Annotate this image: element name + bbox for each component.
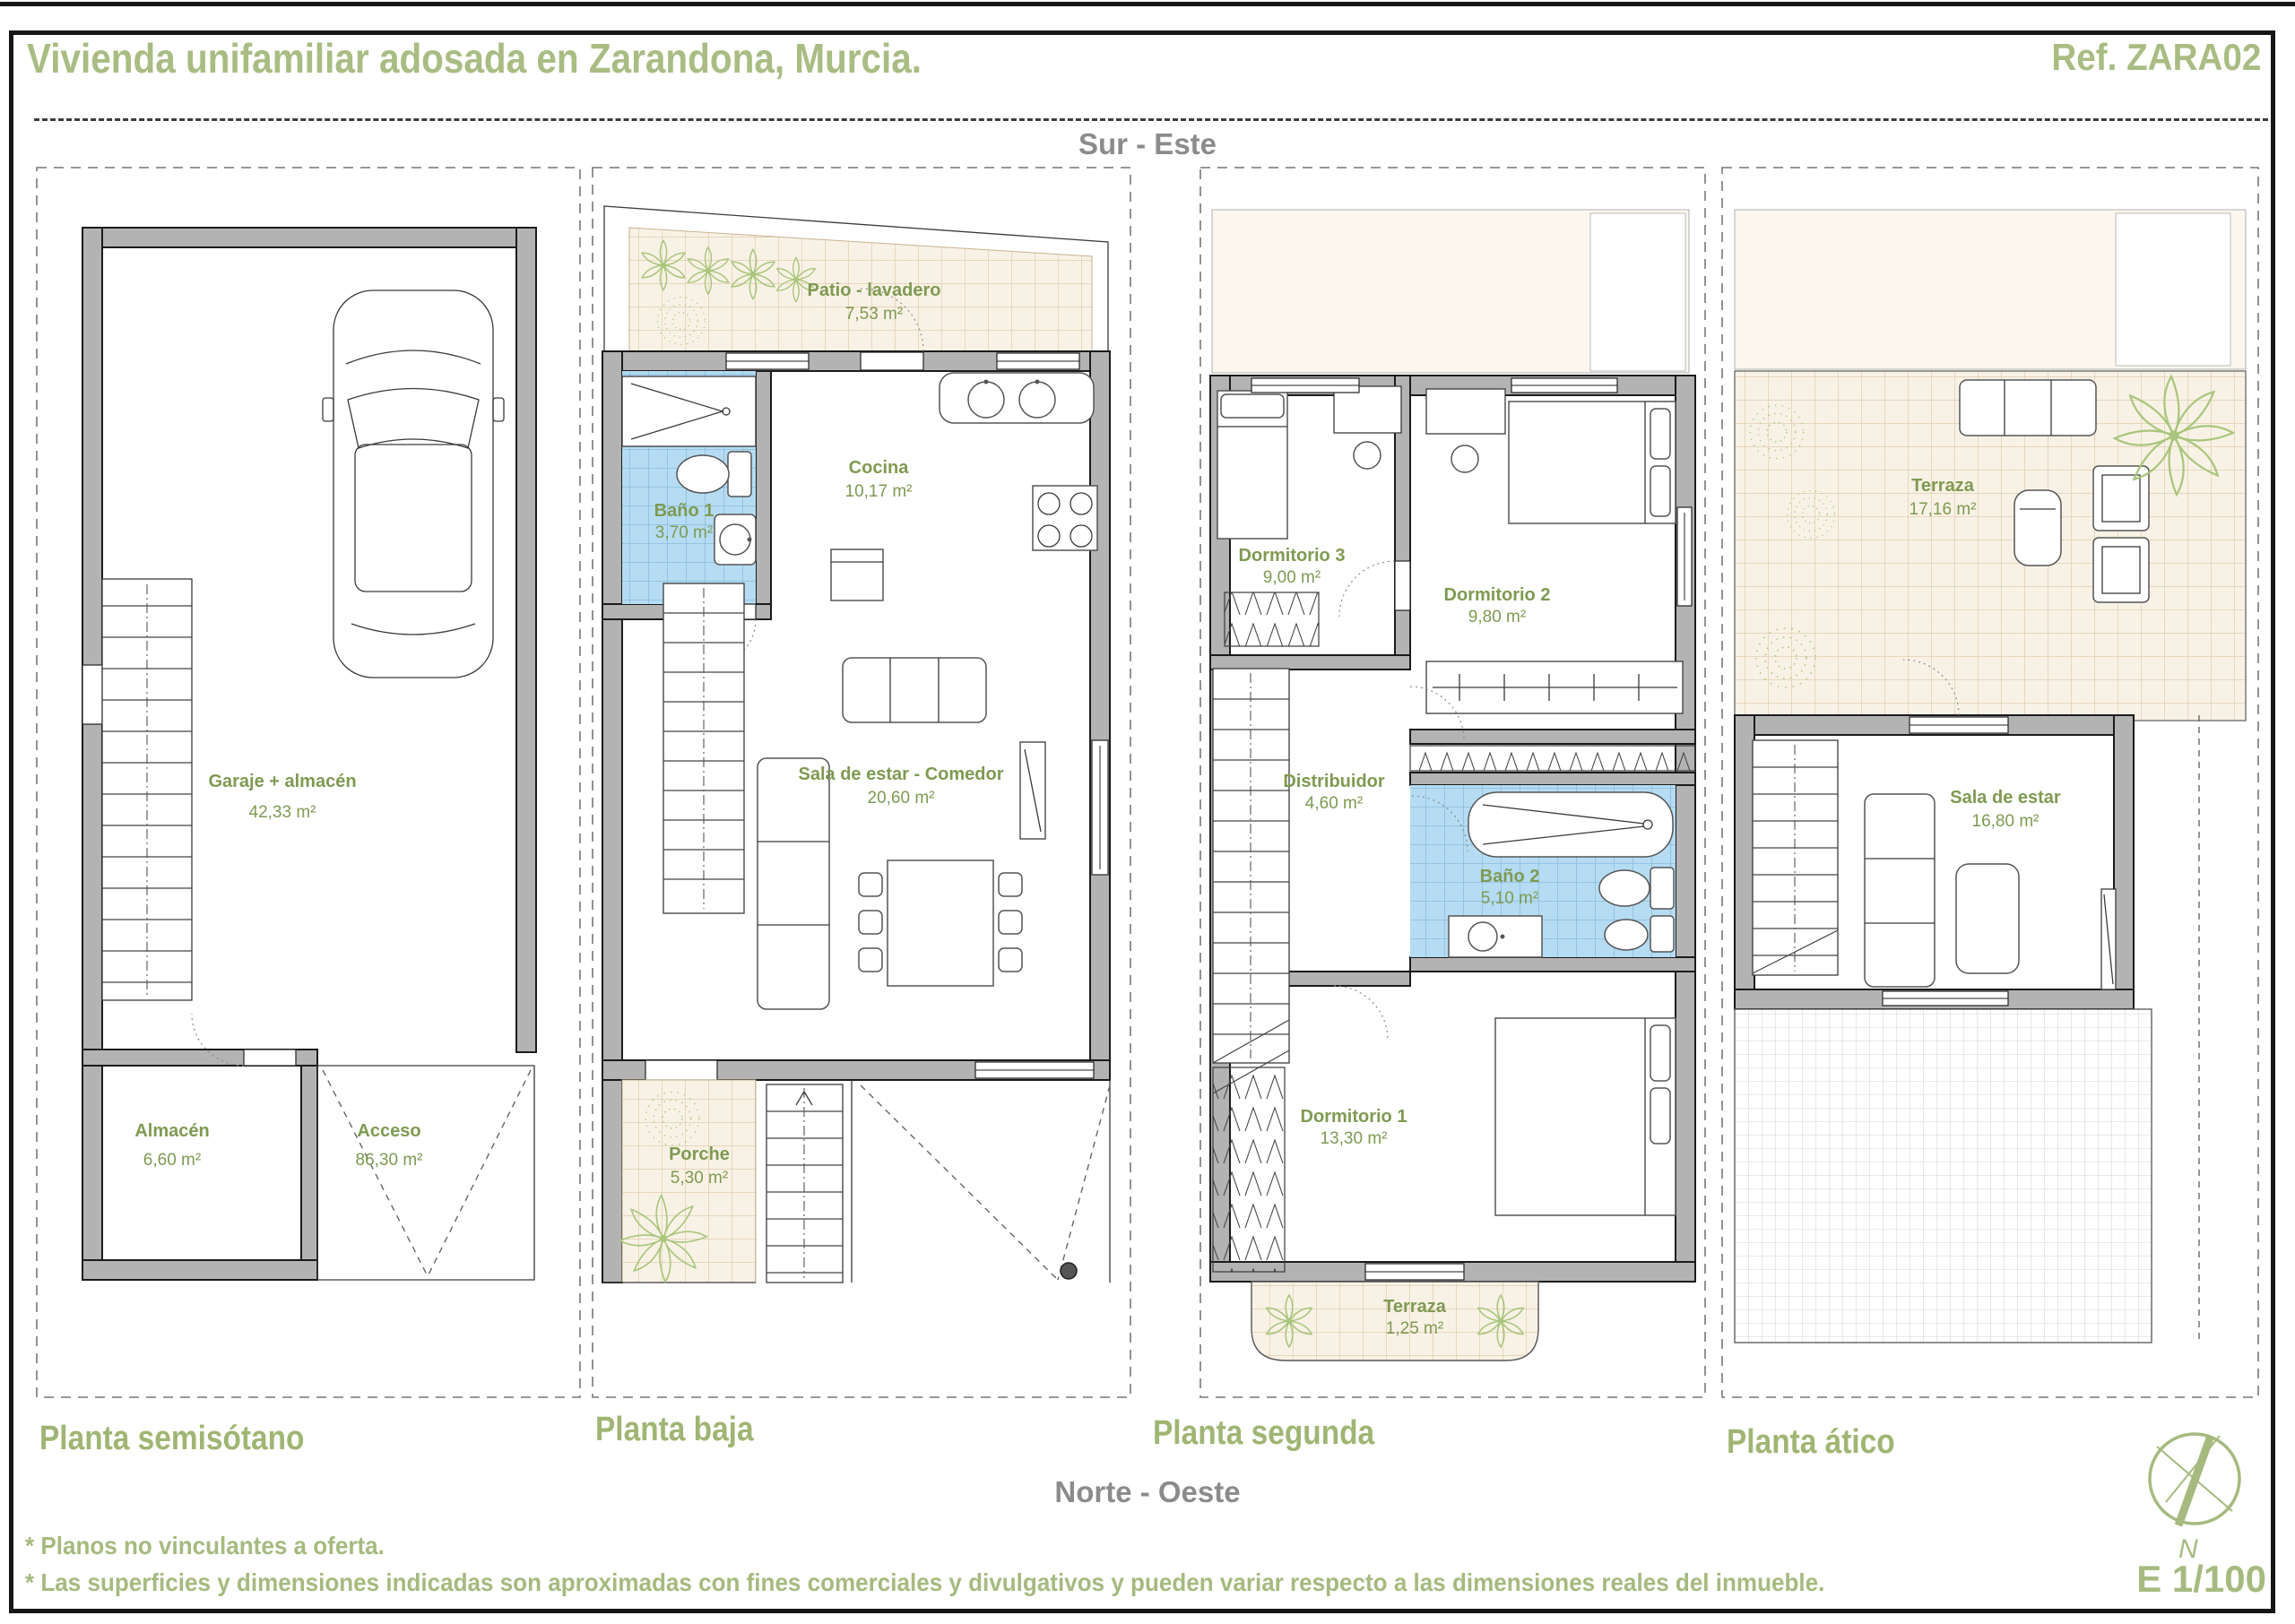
kitchen-sink-icon	[940, 373, 1094, 423]
bedroom-3	[1217, 386, 1410, 646]
footnote-line: * Planos no vinculantes a oferta.	[25, 1527, 1824, 1564]
sofa-icon	[843, 658, 986, 722]
room-label: Acceso	[357, 1121, 420, 1141]
room-label: Dormitorio 1	[1301, 1107, 1407, 1127]
sink-icon	[714, 514, 756, 565]
roof-tiles	[1735, 1009, 2152, 1343]
room-label: Almacén	[134, 1121, 209, 1141]
hob-icon	[1033, 486, 1097, 550]
bathtub-icon	[1468, 792, 1673, 857]
wardrobe-icon	[1225, 592, 1319, 646]
room-area: 3,70 m²	[655, 523, 713, 542]
room-label: Sala de estar	[1950, 788, 2061, 808]
room-area: 7,53 m²	[845, 305, 903, 324]
room-label: Garaje + almacén	[208, 772, 356, 791]
compass-icon: N	[2135, 1423, 2254, 1567]
tv-cabinet-icon	[2101, 889, 2116, 989]
plan-name-segunda: Planta segunda	[1153, 1414, 1374, 1453]
wardrobe-icon	[1410, 746, 1695, 771]
dining-table-icon	[859, 860, 1022, 986]
floor-plan-atico: Terraza 17,16 m² Sala de estar 16,80 m²	[1721, 167, 2259, 1398]
drain-icon	[1061, 1263, 1077, 1279]
bed-icon	[1509, 402, 1676, 523]
footnote-line: * Las superficies y dimensiones indicada…	[25, 1564, 1824, 1601]
tv-cabinet-icon	[1020, 742, 1045, 839]
sofa-icon	[1865, 794, 1935, 987]
desk-icon	[1334, 386, 1401, 469]
room-label: Sala de estar - Comedor	[799, 764, 1004, 784]
car-top-view	[323, 290, 504, 678]
page-title: Vivienda unifamiliar adosada en Zarandon…	[27, 34, 922, 82]
orientation-top-label: Sur - Este	[0, 127, 2295, 161]
driveway-ramp	[852, 1080, 1110, 1283]
scale-label: E 1/100	[2136, 1558, 2266, 1601]
fridge-icon	[831, 549, 883, 600]
plan-name-baja: Planta baja	[595, 1411, 754, 1449]
staircase	[1213, 669, 1289, 1093]
floor-plan-baja: Patio - lavadero 7,53 m² Baño 1 3,70 m² …	[592, 167, 1131, 1398]
armchair-icon	[2093, 538, 2149, 602]
staircase	[1753, 740, 1838, 975]
room-area: 6,60 m²	[143, 1151, 201, 1170]
room-area: 16,80 m²	[1972, 812, 2040, 831]
desk-icon	[1426, 389, 1505, 472]
bed-icon	[1495, 1018, 1676, 1215]
room-area: 5,30 m²	[671, 1169, 728, 1188]
room-area: 1,25 m²	[1386, 1319, 1443, 1338]
armchair-icon	[2093, 466, 2149, 531]
room-label: Patio - lavadero	[808, 281, 941, 300]
living-dining	[758, 658, 1045, 1009]
lounge-chair-icon	[2014, 490, 2061, 566]
room-area: 10,17 m²	[845, 482, 913, 501]
bed-icon	[1217, 391, 1287, 539]
staircase	[102, 579, 192, 1000]
roof-terrace	[1735, 371, 2246, 721]
shower-icon	[622, 376, 756, 446]
room-area: 86,30 m²	[356, 1151, 423, 1170]
sink-icon	[1449, 916, 1542, 957]
coffee-table-icon	[1956, 864, 2019, 973]
room-area: 20,60 m²	[868, 789, 935, 808]
lower-staircase	[766, 1084, 843, 1283]
floor-plan-segunda: Dormitorio 3 9,00 m² Dormitorio 2 9,80 m…	[1199, 167, 1706, 1398]
room-area: 42,33 m²	[249, 803, 316, 822]
room-area: 9,00 m²	[1263, 568, 1321, 587]
room-label: Terraza	[1383, 1297, 1447, 1317]
room-area: 13,30 m²	[1321, 1129, 1388, 1148]
closet-icon	[1426, 661, 1683, 713]
plan-name-semisotano: Planta semisótano	[39, 1420, 304, 1458]
top-border-bar	[0, 2, 2295, 6]
sofa-icon	[758, 758, 829, 1009]
room-label: Dormitorio 2	[1444, 585, 1551, 605]
wardrobe-icon	[1213, 1067, 1285, 1272]
reference-code: Ref. ZARA02	[2051, 36, 2261, 79]
room-area: 9,80 m²	[1468, 608, 1526, 626]
header-separator	[34, 118, 2268, 121]
orientation-bottom-label: Norte - Oeste	[0, 1475, 2295, 1509]
toilet-icon	[677, 452, 751, 497]
room-label: Porche	[669, 1145, 730, 1164]
room-label: Terraza	[1911, 476, 1975, 496]
patio-roof-inner	[2116, 213, 2230, 366]
room-area: 5,10 m²	[1481, 889, 1538, 908]
room-label: Baño 2	[1480, 867, 1540, 886]
footnotes: * Planos no vinculantes a oferta. * Las …	[25, 1527, 1824, 1601]
room-label: Distribuidor	[1283, 772, 1385, 791]
acceso-ramp	[317, 1066, 534, 1280]
bathroom-2	[1410, 785, 1676, 957]
plan-name-atico: Planta ático	[1727, 1423, 1895, 1462]
floor-plan-semisotano: Garaje + almacén 42,33 m² Almacén 6,60 m…	[36, 167, 581, 1398]
room-area: 17,16 m²	[1910, 500, 1977, 519]
room-label: Baño 1	[654, 501, 714, 521]
patio-roof-inner	[1590, 213, 1685, 371]
room-label: Dormitorio 3	[1239, 546, 1346, 566]
floor-plan-sheet: Vivienda unifamiliar adosada en Zarandon…	[0, 0, 2295, 1624]
toilet-icon	[1599, 868, 1674, 909]
room-area: 4,60 m²	[1305, 794, 1363, 813]
bedroom-2	[1410, 389, 1683, 740]
outdoor-sofa-icon	[1960, 380, 2096, 436]
upper-staircase	[663, 583, 744, 913]
room-label: Cocina	[849, 458, 910, 478]
